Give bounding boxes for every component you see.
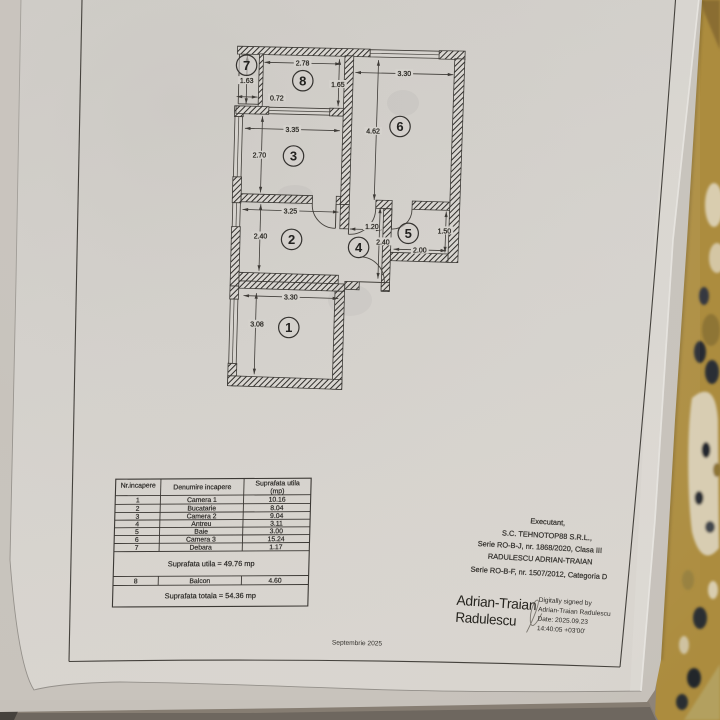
svg-text:6: 6	[135, 537, 139, 544]
svg-text:Septembrie 2025: Septembrie 2025	[332, 639, 383, 647]
svg-text:3.25: 3.25	[284, 208, 298, 215]
svg-text:5: 5	[405, 226, 412, 241]
svg-text:Camera 3: Camera 3	[186, 536, 216, 543]
svg-text:1.50: 1.50	[438, 228, 452, 235]
svg-text:Suprafata utila = 49.76 mp: Suprafata utila = 49.76 mp	[168, 559, 255, 568]
svg-text:Camera 2: Camera 2	[187, 513, 217, 520]
svg-text:2.70: 2.70	[253, 153, 267, 160]
svg-text:3: 3	[135, 514, 139, 521]
svg-text:Suprafata totala = 54.36 mp: Suprafata totala = 54.36 mp	[165, 591, 256, 600]
svg-text:Bucatarie: Bucatarie	[187, 505, 216, 512]
svg-text:3.30: 3.30	[397, 71, 411, 78]
svg-text:7: 7	[243, 58, 250, 73]
svg-text:2.78: 2.78	[296, 61, 310, 68]
svg-text:5: 5	[135, 529, 139, 536]
svg-text:1: 1	[285, 320, 292, 335]
svg-text:1.20: 1.20	[365, 224, 379, 231]
svg-text:10.16: 10.16	[269, 497, 286, 504]
svg-text:2.40: 2.40	[254, 233, 268, 240]
svg-text:1: 1	[136, 497, 140, 504]
svg-text:Balcon: Balcon	[189, 578, 210, 585]
svg-text:Antreu: Antreu	[191, 521, 211, 528]
svg-text:4.62: 4.62	[366, 129, 380, 136]
svg-text:2: 2	[288, 232, 295, 247]
svg-text:Baie: Baie	[194, 529, 208, 536]
svg-text:3.11: 3.11	[270, 521, 283, 528]
svg-text:4: 4	[135, 521, 139, 528]
svg-text:3: 3	[290, 149, 297, 164]
svg-text:(mp): (mp)	[270, 488, 284, 495]
svg-text:3.30: 3.30	[284, 295, 298, 302]
svg-text:Suprafata utila: Suprafata utila	[255, 480, 300, 487]
svg-text:8.04: 8.04	[270, 505, 284, 512]
svg-text:2.40: 2.40	[376, 239, 390, 246]
svg-text:1.65: 1.65	[331, 82, 345, 89]
svg-text:15.24: 15.24	[268, 536, 285, 543]
svg-text:1.17: 1.17	[269, 544, 283, 551]
svg-text:6: 6	[396, 119, 403, 134]
svg-text:3.35: 3.35	[285, 127, 299, 134]
svg-text:Nr.incapere: Nr.incapere	[121, 482, 157, 489]
svg-text:8: 8	[299, 73, 306, 88]
svg-text:8: 8	[134, 578, 138, 585]
svg-text:7: 7	[135, 545, 139, 552]
svg-text:Debara: Debara	[189, 544, 212, 551]
svg-text:3.00: 3.00	[270, 528, 284, 535]
svg-text:Camera 1: Camera 1	[187, 497, 217, 504]
svg-text:0.72: 0.72	[270, 95, 284, 102]
svg-text:2: 2	[136, 506, 140, 513]
svg-text:3.08: 3.08	[250, 322, 264, 329]
svg-text:4.60: 4.60	[268, 578, 282, 585]
svg-text:2.00: 2.00	[413, 248, 427, 255]
svg-text:4: 4	[355, 240, 363, 255]
svg-text:Denumire incapere: Denumire incapere	[173, 484, 231, 491]
svg-text:9.04: 9.04	[270, 513, 284, 520]
svg-text:1.63: 1.63	[240, 78, 254, 85]
